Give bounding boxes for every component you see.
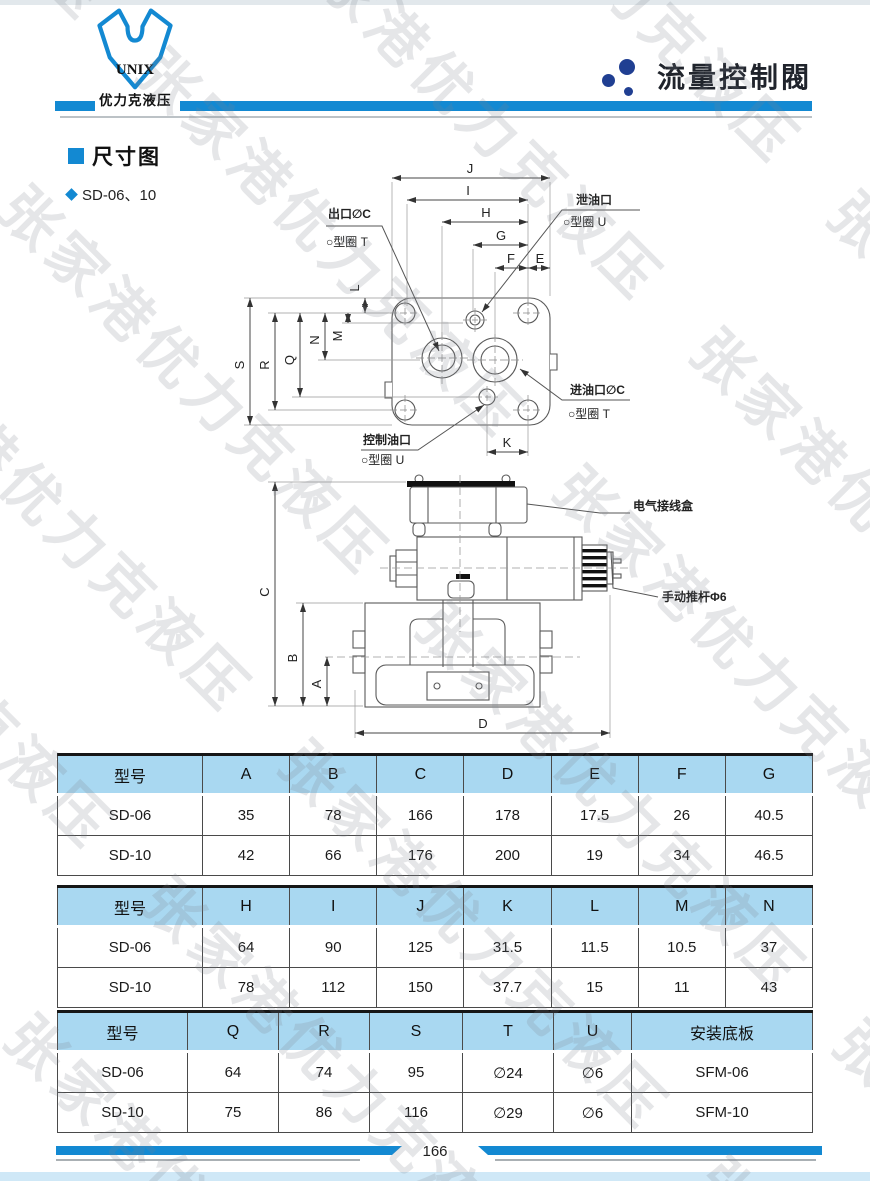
table-header-row: 型号 H I J K L M N	[58, 887, 813, 927]
cell: 34	[638, 836, 725, 876]
model-label: SD-06、10	[82, 184, 156, 205]
dim-Q: Q	[282, 355, 297, 365]
header-cell: H	[203, 887, 290, 927]
blue-diamond-icon	[65, 188, 78, 201]
cell: 200	[464, 836, 551, 876]
brand-name: 优力克液压	[99, 89, 172, 109]
cell: ∅24	[463, 1052, 554, 1093]
cell: ∅6	[554, 1052, 632, 1093]
table-row: SD-10 42 66 176 200 19 34 46.5	[58, 836, 813, 876]
dim-A: A	[309, 679, 324, 688]
header-cell: 型号	[58, 755, 203, 795]
manual-rod-label: 手动推杆Φ6	[662, 589, 727, 604]
blue-square-icon	[68, 148, 84, 164]
cell: 116	[370, 1093, 463, 1133]
cell: 37.7	[464, 968, 551, 1008]
cell: 166	[377, 795, 464, 836]
header-cell: I	[290, 887, 377, 927]
inlet-oring-label: ○型圈 T	[568, 407, 611, 421]
model-row: SD-06、10	[67, 184, 156, 205]
header-cell: J	[377, 887, 464, 927]
page-number: 166	[402, 1143, 468, 1160]
dim-I: I	[466, 183, 470, 198]
control-oring-label: ○型圈 U	[361, 453, 404, 467]
header-cell: N	[725, 887, 812, 927]
cell: SD-10	[58, 968, 203, 1008]
header-cell: K	[464, 887, 551, 927]
cell: 26	[638, 795, 725, 836]
watermark-text: 张家港优力克液压	[532, 0, 870, 43]
cell: SD-10	[58, 1093, 188, 1133]
dim-L: L	[347, 284, 362, 291]
header-bar-left	[55, 101, 95, 111]
dimension-table-qrstu: 型号 Q R S T U 安装底板 SD-06 64 74 95 ∅24 ∅6 …	[57, 1010, 813, 1133]
cell: 86	[279, 1093, 370, 1133]
cell: 40.5	[725, 795, 812, 836]
watermark-text: 张家港优力克液压	[818, 999, 870, 1181]
nameplate	[427, 672, 489, 700]
page-title: 流量控制閥	[657, 56, 812, 96]
cell: 35	[203, 795, 290, 836]
cell: 74	[279, 1052, 370, 1093]
cell: 176	[377, 836, 464, 876]
dim-G: G	[496, 228, 506, 243]
side-view-labels: 电气接线盒 手动推杆Φ6	[527, 498, 727, 604]
cell: 66	[290, 836, 377, 876]
dimension-drawing: J I H G F E S R Q N M L K 出口∅C ○型圈 T 泄油口…	[230, 160, 850, 750]
header-cell: C	[377, 755, 464, 795]
cell: 37	[725, 927, 812, 968]
cell: 125	[377, 927, 464, 968]
cell: 78	[290, 795, 377, 836]
footer-rule-right	[495, 1159, 816, 1161]
title-dot-icon	[619, 59, 635, 75]
header-cell: B	[290, 755, 377, 795]
cell: 64	[188, 1052, 279, 1093]
dimension-table-abcdefg: 型号 A B C D E F G SD-06 35 78 166 178 17.…	[57, 753, 813, 876]
logo-text: UNIX	[116, 62, 154, 78]
drain-label: 泄油口	[576, 192, 612, 207]
header-rule	[60, 116, 812, 118]
header-cell: E	[551, 755, 638, 795]
cell: 10.5	[638, 927, 725, 968]
footer-rule-left	[56, 1159, 360, 1161]
cell: 112	[290, 968, 377, 1008]
dim-J: J	[467, 161, 474, 176]
cell: 31.5	[464, 927, 551, 968]
table-header-row: 型号 Q R S T U 安装底板	[58, 1012, 813, 1052]
cell: 90	[290, 927, 377, 968]
cell: 178	[464, 795, 551, 836]
cell: 64	[203, 927, 290, 968]
cell: SD-10	[58, 836, 203, 876]
dim-H: H	[481, 205, 490, 220]
cell: 75	[188, 1093, 279, 1133]
junction-box	[407, 475, 527, 536]
cell: SD-06	[58, 795, 203, 836]
title-dot-icon	[602, 74, 615, 87]
header-cell: R	[279, 1012, 370, 1052]
dim-F: F	[507, 251, 515, 266]
dim-E: E	[536, 251, 545, 266]
cell: 11	[638, 968, 725, 1008]
dim-C: C	[257, 587, 272, 596]
header-cell: L	[551, 887, 638, 927]
header-cell: D	[464, 755, 551, 795]
top-view	[385, 298, 557, 425]
table-row: SD-06 64 74 95 ∅24 ∅6 SFM-06	[58, 1052, 813, 1093]
cell: SD-06	[58, 1052, 188, 1093]
solenoid-coil	[390, 537, 582, 600]
cell: 15	[551, 968, 638, 1008]
cell: 19	[551, 836, 638, 876]
cell: SD-06	[58, 927, 203, 968]
cell: 46.5	[725, 836, 812, 876]
section-title: 尺寸图	[92, 141, 161, 171]
cell: ∅29	[463, 1093, 554, 1133]
dim-N: N	[307, 335, 322, 344]
override-slot	[448, 574, 474, 598]
dim-S: S	[232, 360, 247, 369]
dim-R: R	[257, 360, 272, 369]
title-dot-icon	[624, 87, 633, 96]
footer-bar-left	[56, 1146, 402, 1155]
cell: ∅6	[554, 1093, 632, 1133]
table-row: SD-10 75 86 116 ∅29 ∅6 SFM-10	[58, 1093, 813, 1133]
valve-body	[353, 600, 552, 707]
side-view-dim-letters: C B A D	[257, 587, 488, 731]
header-bar-right	[180, 101, 812, 111]
cell: SFM-06	[632, 1052, 813, 1093]
outlet-label: 出口∅C	[328, 206, 371, 221]
table-row: SD-10 78 112 150 37.7 15 11 43	[58, 968, 813, 1008]
dimension-table-hijklmn: 型号 H I J K L M N SD-06 64 90 125 31.5 11…	[57, 885, 813, 1008]
catalog-page: UNIX 优力克液压 流量控制閥 尺寸图 SD-06、10	[0, 0, 870, 1181]
table-row: SD-06 64 90 125 31.5 11.5 10.5 37	[58, 927, 813, 968]
header-cell: A	[203, 755, 290, 795]
drain-oring-label: ○型圈 U	[563, 215, 606, 229]
cell: 17.5	[551, 795, 638, 836]
header-cell: G	[725, 755, 812, 795]
header-cell: Q	[188, 1012, 279, 1052]
cell: 43	[725, 968, 812, 1008]
bottom-edge-strip	[0, 1172, 870, 1181]
footer-bar-right	[478, 1146, 822, 1155]
inlet-label: 进油口∅C	[570, 382, 625, 397]
table-row: SD-06 35 78 166 178 17.5 26 40.5	[58, 795, 813, 836]
cell: 11.5	[551, 927, 638, 968]
table-header-row: 型号 A B C D E F G	[58, 755, 813, 795]
dim-B: B	[285, 654, 300, 663]
header-cell: S	[370, 1012, 463, 1052]
header-cell: U	[554, 1012, 632, 1052]
outlet-oring-label: ○型圈 T	[326, 235, 369, 249]
cell: 78	[203, 968, 290, 1008]
cell: 95	[370, 1052, 463, 1093]
header-cell: 安装底板	[632, 1012, 813, 1052]
header-cell: 型号	[58, 1012, 188, 1052]
header-cell: 型号	[58, 887, 203, 927]
side-view	[325, 475, 630, 707]
cell: 42	[203, 836, 290, 876]
header-cell: M	[638, 887, 725, 927]
header-cell: F	[638, 755, 725, 795]
header-cell: T	[463, 1012, 554, 1052]
cell: SFM-10	[632, 1093, 813, 1133]
dim-K: K	[503, 435, 512, 450]
dim-D: D	[478, 716, 487, 731]
cell: 150	[377, 968, 464, 1008]
unix-logo: UNIX	[92, 5, 178, 91]
section-heading-row: 尺寸图	[68, 141, 161, 171]
junction-box-label: 电气接线盒	[633, 498, 694, 513]
dim-M: M	[330, 331, 345, 342]
control-label: 控制油口	[363, 432, 411, 447]
